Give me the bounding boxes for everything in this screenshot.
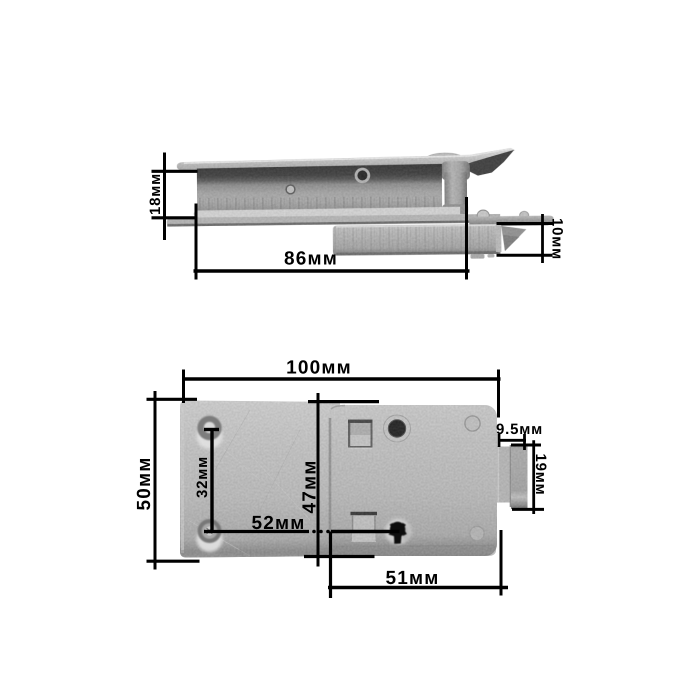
svg-text:52мм: 52мм	[251, 513, 305, 534]
svg-text:50мм: 50мм	[134, 456, 155, 510]
svg-text:47мм: 47мм	[300, 459, 321, 513]
svg-text:86мм: 86мм	[284, 249, 338, 270]
svg-text:19мм: 19мм	[532, 453, 549, 495]
svg-text:51мм: 51мм	[385, 568, 439, 589]
svg-text:32мм: 32мм	[194, 456, 211, 498]
svg-text:9.5мм: 9.5мм	[496, 421, 543, 438]
svg-text:100мм: 100мм	[286, 358, 352, 379]
svg-text:18мм: 18мм	[147, 173, 164, 215]
svg-text:10мм: 10мм	[549, 218, 566, 260]
